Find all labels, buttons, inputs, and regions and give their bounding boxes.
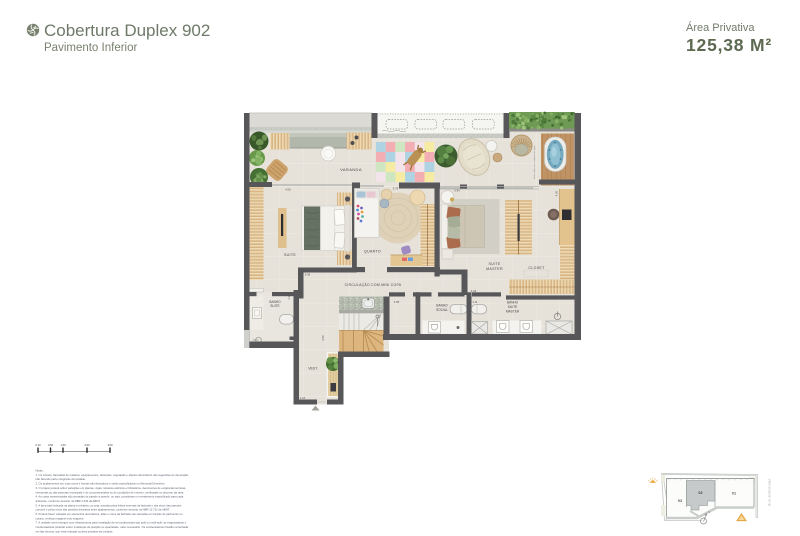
svg-text:1.00: 1.00 (60, 443, 66, 447)
svg-text:comuns e pelos eixos das pared: comuns e pelos eixos das paredes divisór… (36, 508, 171, 512)
svg-text:2.00: 2.00 (84, 443, 90, 447)
svg-text:MASTER: MASTER (486, 267, 503, 271)
svg-text:5. A área total indicada na pl: 5. A área total indicada na planta é pri… (36, 503, 182, 507)
svg-text:não fazendo parte integrante d: não fazendo parte integrante da unidade. (36, 477, 87, 481)
svg-text:BANHO: BANHO (507, 301, 519, 305)
svg-text:4.09: 4.09 (285, 187, 291, 191)
svg-text:3.00: 3.00 (107, 443, 113, 447)
svg-text:CLOSET: CLOSET (528, 266, 545, 270)
svg-text:2. Os acabamentos em suas core: 2. Os acabamentos em suas cores e formas… (36, 482, 166, 486)
svg-text:7. A unidade será entregue com: 7. A unidade será entregue com infraestr… (36, 521, 187, 525)
svg-text:MASTER: MASTER (506, 309, 520, 313)
svg-text:5.94: 5.94 (454, 189, 460, 193)
svg-text:3.79: 3.79 (393, 187, 399, 191)
svg-text:SUITE: SUITE (508, 305, 517, 309)
svg-text:condensadoras poderão sofrer m: condensadoras poderão sofrer mudanças de… (36, 525, 189, 529)
svg-text:01: 01 (732, 492, 736, 496)
svg-text:SUITE: SUITE (488, 262, 500, 266)
svg-text:VEST.: VEST. (308, 367, 317, 371)
svg-text:SUITE: SUITE (270, 304, 279, 308)
svg-text:coluna, verificar imagens e/ou: coluna, verificar imagens e/ou maquete. (36, 516, 85, 520)
svg-text:deck e duto com vedação de águ: deck e duto com vedação de água (533, 145, 536, 179)
svg-text:2.95: 2.95 (394, 300, 400, 304)
svg-text:BANHO: BANHO (436, 304, 448, 308)
svg-text:em laje técnica, que está indi: em laje técnica, que está indicada na ár… (36, 529, 114, 533)
svg-text:1.36: 1.36 (287, 294, 291, 300)
svg-text:estruturais ou das posturas mu: estruturais ou das posturas municipais e… (36, 490, 185, 494)
svg-text:0.10: 0.10 (35, 443, 41, 447)
svg-text:1.90: 1.90 (462, 273, 466, 279)
svg-text:RUA SOROCABA: RUA SOROCABA (768, 478, 772, 506)
svg-text:VARANDA: VARANDA (340, 167, 362, 172)
svg-text:4.20: 4.20 (555, 190, 559, 196)
svg-text:6. Poderá haver variação em el: 6. Poderá haver variação em elementos de… (36, 512, 184, 516)
svg-text:QUARTO: QUARTO (364, 250, 381, 254)
svg-text:4.18: 4.18 (471, 289, 477, 293)
svg-text:9.36: 9.36 (305, 273, 311, 277)
svg-text:SUITE: SUITE (284, 253, 296, 257)
svg-text:4. As cotas representadas são: 4. As cotas representadas são anotadas d… (36, 495, 184, 499)
svg-text:N: N (708, 510, 710, 514)
svg-text:Notas:: Notas: (36, 469, 44, 473)
svg-text:1. Os móveis, bancadas de made: 1. Os móveis, bancadas de madeira, equip… (36, 473, 190, 477)
svg-text:03: 03 (678, 499, 682, 503)
svg-text:ambiente, conforme descrito na: ambiente, conforme descrito na NBR 1.344… (36, 499, 101, 503)
svg-text:0.50: 0.50 (48, 443, 54, 447)
svg-text:02: 02 (698, 491, 702, 495)
svg-text:1.24: 1.24 (300, 396, 306, 400)
svg-text:3. O projeto poderá sofrer var: 3. O projeto poderá sofrer variações em … (36, 486, 187, 490)
svg-text:CIRCULAÇÃO COM MINI COPA: CIRCULAÇÃO COM MINI COPA (345, 282, 402, 287)
svg-text:SOCIAL: SOCIAL (436, 308, 448, 312)
svg-text:4.11: 4.11 (472, 300, 478, 304)
svg-text:BANHO: BANHO (269, 300, 281, 304)
svg-text:4.50: 4.50 (321, 335, 325, 341)
